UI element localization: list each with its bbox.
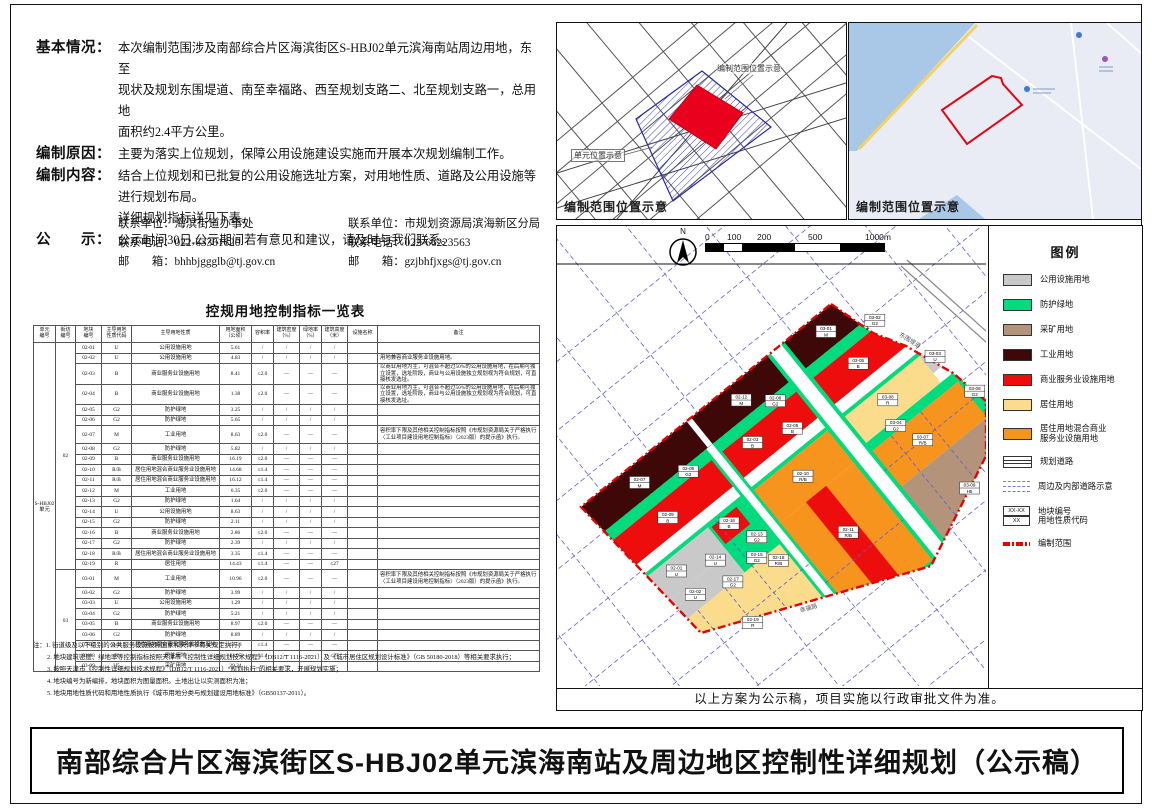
table-row: 02-16B商业服务业设施用地2.86≤2.0——— bbox=[34, 528, 540, 539]
legend-item: 周边及内部道路示意 bbox=[1003, 481, 1142, 493]
svg-text:03-07: 03-07 bbox=[917, 434, 929, 439]
svg-text:03-04: 03-04 bbox=[890, 420, 902, 425]
column-header: 主导用地性质 bbox=[132, 326, 220, 343]
scale-500: 500 bbox=[808, 232, 822, 242]
svg-text:02-05: 02-05 bbox=[787, 423, 799, 428]
zoning-drawing: 东围堤道幸福路 02-07M02-12M03-01M02-06G202-08G2… bbox=[557, 226, 986, 686]
svg-text:03-06: 03-06 bbox=[969, 386, 981, 391]
unit-location-map-drawing bbox=[557, 23, 846, 219]
table-notes: 注：1. 街道级及以下级别的公共服务设施按照国家和天津市有关规定执行；2. 地块… bbox=[33, 640, 553, 700]
table-row: 02-15G2防护绿地2.11//// bbox=[34, 517, 540, 528]
info-section: 编制原因：主要为落实上位规划，保障公用设施建设实施而开展本次规划编制工作。 bbox=[36, 144, 541, 165]
table-row: 02-12M工业用地6.35≤2.0——— bbox=[34, 486, 540, 497]
parcel-label-02-16: 02-16B bbox=[719, 517, 739, 529]
north-label: N bbox=[665, 228, 701, 236]
svg-text:02-03: 02-03 bbox=[747, 437, 759, 442]
svg-text:02-15: 02-15 bbox=[751, 552, 763, 557]
svg-text:G2: G2 bbox=[754, 558, 761, 563]
page-title: 南部综合片区海滨街区S-HBJ02单元滨海南站及周边地区控制性详细规划（公示稿） bbox=[56, 741, 1098, 780]
svg-text:03-02: 03-02 bbox=[869, 315, 881, 320]
column-header: 主导用地性质代码 bbox=[102, 326, 132, 343]
parcel-label-02-07: 02-07M bbox=[630, 476, 650, 488]
column-header: 建筑密度（%） bbox=[274, 326, 300, 343]
legend-item: 编制范围 bbox=[1003, 539, 1142, 549]
svg-text:03-09: 03-09 bbox=[964, 483, 976, 488]
table-row: 02-17G2防护绿地2.39//// bbox=[34, 538, 540, 549]
column-header: 地块编号 bbox=[76, 326, 102, 343]
svg-text:02-06: 02-06 bbox=[682, 466, 694, 471]
svg-text:H5: H5 bbox=[967, 489, 973, 494]
table-row: 02-03B商业服务业设施用地8.41≤2.0———以商业用地为主，可混合不超过… bbox=[34, 364, 540, 385]
control-indicator-table: 单元编号街坊编号地块编号主导用地性质代码主导用地性质用地面积（公顷）容积率建筑密… bbox=[33, 325, 539, 672]
table-row: 02-18R/B居住用地混合商业服务业设施用地3.35≤1.4——— bbox=[34, 549, 540, 560]
svg-text:U: U bbox=[694, 595, 697, 600]
table-row: 02-04B商业服务业设施用地1.38≤2.0———以商业用地为主，可混合不超过… bbox=[34, 384, 540, 405]
svg-text:U: U bbox=[675, 572, 678, 577]
table-row: S-HBJ02单元0202-01U公用设施用地5.61//// bbox=[34, 343, 540, 354]
parcel-label-03-05: 03-05B bbox=[848, 357, 868, 369]
parcel-label-02-09: 02-09B bbox=[658, 511, 678, 523]
table-row: 03-04G2防护绿地5.21//// bbox=[34, 609, 540, 620]
column-header: 设施名称 bbox=[348, 326, 378, 343]
unit-annotation: 单元位置示意 bbox=[571, 149, 625, 162]
svg-text:02-07: 02-07 bbox=[634, 477, 646, 482]
table-row: 02-02U公用设施用地4.83////用地兼容商业服务业设施用地。 bbox=[34, 353, 540, 364]
svg-text:B: B bbox=[791, 429, 794, 434]
main-planning-map: 东围堤道幸福路 02-07M02-12M03-01M02-06G202-08G2… bbox=[556, 225, 990, 690]
svg-text:03-03: 03-03 bbox=[929, 351, 941, 356]
parcel-label-03-09: 03-09H5 bbox=[960, 482, 980, 494]
table-row: 02-06G2防护绿地5.65//// bbox=[34, 415, 540, 426]
table-row: 02-13G2防护绿地1.64//// bbox=[34, 496, 540, 507]
table-row: 02-11R/B居住用地混合商业服务业设施用地16.12≤1.4——— bbox=[34, 475, 540, 486]
svg-text:R/B: R/B bbox=[799, 477, 807, 482]
svg-text:R/B: R/B bbox=[919, 441, 927, 446]
parcel-label-02-14: 02-14U bbox=[705, 554, 725, 566]
footer-title-box: 南部综合片区海滨街区S-HBJ02单元滨海南站及周边地区控制性详细规划（公示稿） bbox=[30, 727, 1124, 794]
column-header: 用地面积（公顷） bbox=[220, 326, 252, 343]
scale-bar: 0 100 200 500 1000m bbox=[705, 232, 885, 252]
existing-road bbox=[901, 260, 986, 342]
parcel-label-02-18: 02-18R/B bbox=[769, 554, 789, 566]
svg-text:G2: G2 bbox=[772, 402, 779, 407]
zoning-parcels bbox=[562, 259, 986, 686]
legend-title: 图例 bbox=[989, 242, 1142, 261]
svg-text:02-16: 02-16 bbox=[723, 518, 735, 523]
parcel-label-03-01: 03-01M bbox=[816, 325, 836, 337]
svg-text:B: B bbox=[751, 443, 754, 448]
parcel-label-03-03: 03-03U bbox=[925, 350, 945, 362]
parcel-label-02-08: 02-08G2 bbox=[765, 395, 785, 407]
legend-item: 居住用地混合商业服务业设施用地 bbox=[1003, 424, 1142, 443]
table-row: 02-09B商业服务业设施用地16.19≤2.0——— bbox=[34, 454, 540, 465]
table-row: 0303-01M工业用地10.96≤2.0———容积率下限及其他相关控制指标按照… bbox=[34, 570, 540, 588]
parcel-label-02-13: 02-13G2 bbox=[747, 531, 767, 543]
legend-item: XX-XXXX地块编号用地性质代码 bbox=[1003, 506, 1142, 526]
column-header: 备注 bbox=[378, 326, 540, 343]
svg-text:G2: G2 bbox=[730, 583, 737, 588]
table-row: 03-02G2防护绿地3.99//// bbox=[34, 588, 540, 599]
svg-text:B: B bbox=[857, 364, 860, 369]
svg-text:02-02: 02-02 bbox=[689, 589, 701, 594]
svg-text:03-01: 03-01 bbox=[820, 326, 832, 331]
table-title: 控规用地控制指标一览表 bbox=[33, 300, 538, 320]
scope-location-map-drawing bbox=[849, 23, 1141, 219]
legend-item: 居住用地 bbox=[1003, 399, 1142, 411]
table-row: 02-19R居住用地14.43≤1.4——≤27 bbox=[34, 559, 540, 570]
table-row: 03-06G2防护绿地8.89//// bbox=[34, 630, 540, 641]
table-row: 02-14U公用设施用地8.63//// bbox=[34, 507, 540, 518]
scope-location-map: 编制范围位置示意 bbox=[848, 22, 1142, 220]
svg-text:B: B bbox=[728, 524, 731, 529]
svg-text:02-11: 02-11 bbox=[843, 527, 855, 532]
legend-item: 防护绿地 bbox=[1003, 299, 1142, 311]
svg-text:02-09: 02-09 bbox=[662, 512, 674, 517]
svg-text:U: U bbox=[933, 357, 936, 362]
parcel-label-02-15: 02-15G2 bbox=[747, 551, 767, 563]
disclaimer-bar: 以上方案为公示稿，项目实施以行政审批文件为准。 bbox=[556, 688, 1143, 711]
table-row: 03-05B商业服务业设施用地8.97≤2.0——— bbox=[34, 619, 540, 630]
svg-text:02-17: 02-17 bbox=[727, 576, 739, 581]
table-row: 02-05G2防护绿地3.25//// bbox=[34, 405, 540, 416]
parcel-label-02-11: 02-11R/B bbox=[838, 526, 858, 538]
table-row: 03-03U公用设施用地1.29//// bbox=[34, 598, 540, 609]
legend-panel: 图例 公用设施用地防护绿地采矿用地工业用地商业服务业设施用地居住用地居住用地混合… bbox=[988, 225, 1143, 690]
legend-item: 采矿用地 bbox=[1003, 324, 1142, 336]
svg-text:M: M bbox=[739, 401, 743, 406]
scale-200: 200 bbox=[757, 232, 771, 242]
table-row: 02-10R/B居住用地混合商业服务业设施用地14.68≤1.4——— bbox=[34, 465, 540, 476]
svg-text:02-19: 02-19 bbox=[747, 617, 759, 622]
legend-item: 工业用地 bbox=[1003, 349, 1142, 361]
parcel-label-03-06: 03-06G2 bbox=[965, 385, 985, 397]
table-row: 02-08G2防护绿地5.82//// bbox=[34, 444, 540, 455]
parcel-label-03-07: 03-07R/B bbox=[913, 434, 933, 446]
scale-0: 0 bbox=[705, 232, 710, 242]
svg-text:B: B bbox=[666, 518, 669, 523]
column-header: 街坊编号 bbox=[56, 326, 76, 343]
scale-1000: 1000m bbox=[865, 232, 891, 242]
legend-item: 规划道路 bbox=[1003, 456, 1142, 468]
parcel-label-02-06: 02-06G2 bbox=[678, 465, 698, 477]
parcel-label-02-17: 02-17G2 bbox=[723, 576, 743, 588]
parcel-label-02-01: 02-01U bbox=[666, 565, 686, 577]
column-header: 单元编号 bbox=[34, 326, 56, 343]
svg-text:M: M bbox=[824, 332, 828, 337]
column-header: 建筑高度（米） bbox=[322, 326, 348, 343]
parcel-label-02-03: 02-03B bbox=[743, 436, 763, 448]
parcel-label-02-02: 02-02U bbox=[685, 588, 705, 600]
parcel-label-02-10: 02-10R/B bbox=[793, 470, 813, 482]
parcel-label-02-12: 02-12M bbox=[731, 394, 751, 406]
parcel-label-02-05: 02-05B bbox=[782, 422, 802, 434]
svg-text:G2: G2 bbox=[754, 538, 761, 543]
svg-text:R/B: R/B bbox=[775, 561, 783, 566]
contact-left: 联系单位：海滨街道办事处联系电话：022-63361620邮 箱：bhhbjgg… bbox=[118, 215, 348, 272]
svg-text:02-12: 02-12 bbox=[735, 395, 747, 400]
svg-text:M: M bbox=[638, 483, 642, 488]
svg-text:02-18: 02-18 bbox=[773, 555, 785, 560]
legend-item: 商业服务业设施用地 bbox=[1003, 374, 1142, 386]
table-row: 02-07M工业用地8.63≤2.0———容积率下限及其他相关控制指标按照《市规… bbox=[34, 426, 540, 444]
column-header: 容积率 bbox=[252, 326, 274, 343]
svg-text:02-14: 02-14 bbox=[709, 555, 721, 560]
svg-text:02-13: 02-13 bbox=[751, 531, 763, 536]
info-section: 基本情况：本次编制范围涉及南部综合片区海滨街区S-HBJ02单元滨海南站周边用地… bbox=[36, 38, 541, 143]
svg-text:03-08: 03-08 bbox=[882, 394, 894, 399]
svg-text:U: U bbox=[714, 561, 717, 566]
svg-text:03-05: 03-05 bbox=[852, 358, 864, 363]
svg-text:02-10: 02-10 bbox=[797, 471, 809, 476]
scale-100: 100 bbox=[727, 232, 741, 242]
svg-text:G2: G2 bbox=[972, 392, 979, 397]
map1-caption: 编制范围位置示意 bbox=[564, 198, 668, 215]
north-arrow: N bbox=[665, 228, 701, 268]
parcel-label-02-19: 02-19R bbox=[743, 616, 763, 628]
parcel-label-03-08: 03-08R bbox=[878, 394, 898, 406]
unit-location-map: 编制范围位置示意 单元位置示意 编制范围位置示意 bbox=[556, 22, 847, 220]
scope-annotation: 编制范围位置示意 bbox=[717, 63, 781, 74]
parcel-label-03-04: 03-04G2 bbox=[886, 420, 906, 432]
svg-text:02-01: 02-01 bbox=[671, 566, 683, 571]
svg-text:G2: G2 bbox=[872, 321, 879, 326]
column-header: 绿地率（%） bbox=[300, 326, 322, 343]
legend-item: 公用设施用地 bbox=[1003, 274, 1142, 286]
svg-text:G2: G2 bbox=[685, 472, 692, 477]
svg-text:02-08: 02-08 bbox=[769, 395, 781, 400]
map2-caption: 编制范围位置示意 bbox=[856, 198, 960, 215]
parcel-label-03-02: 03-02G2 bbox=[865, 314, 885, 326]
svg-text:R/B: R/B bbox=[844, 533, 852, 538]
svg-text:G2: G2 bbox=[893, 426, 900, 431]
